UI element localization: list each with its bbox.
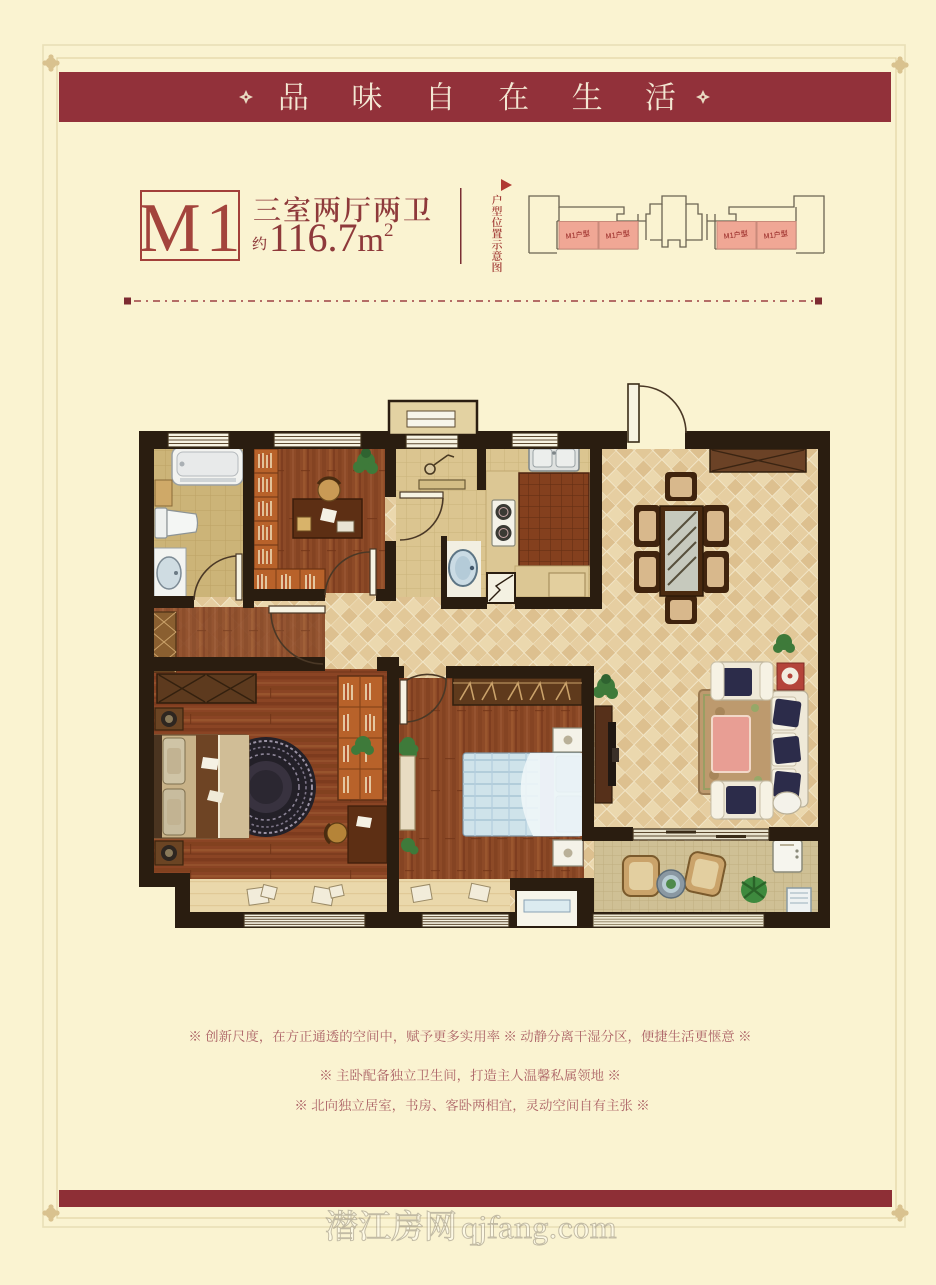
svg-text:M1: M1 (138, 190, 245, 267)
svg-text:116.7m2: 116.7m2 (269, 215, 393, 260)
